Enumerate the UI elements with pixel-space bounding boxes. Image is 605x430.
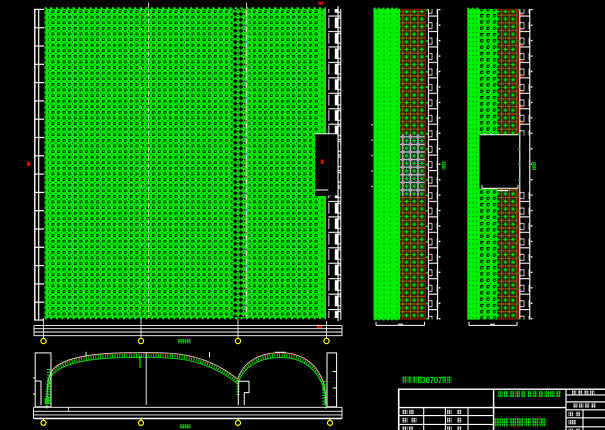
svg-text:30707: 30707 [422,376,443,385]
